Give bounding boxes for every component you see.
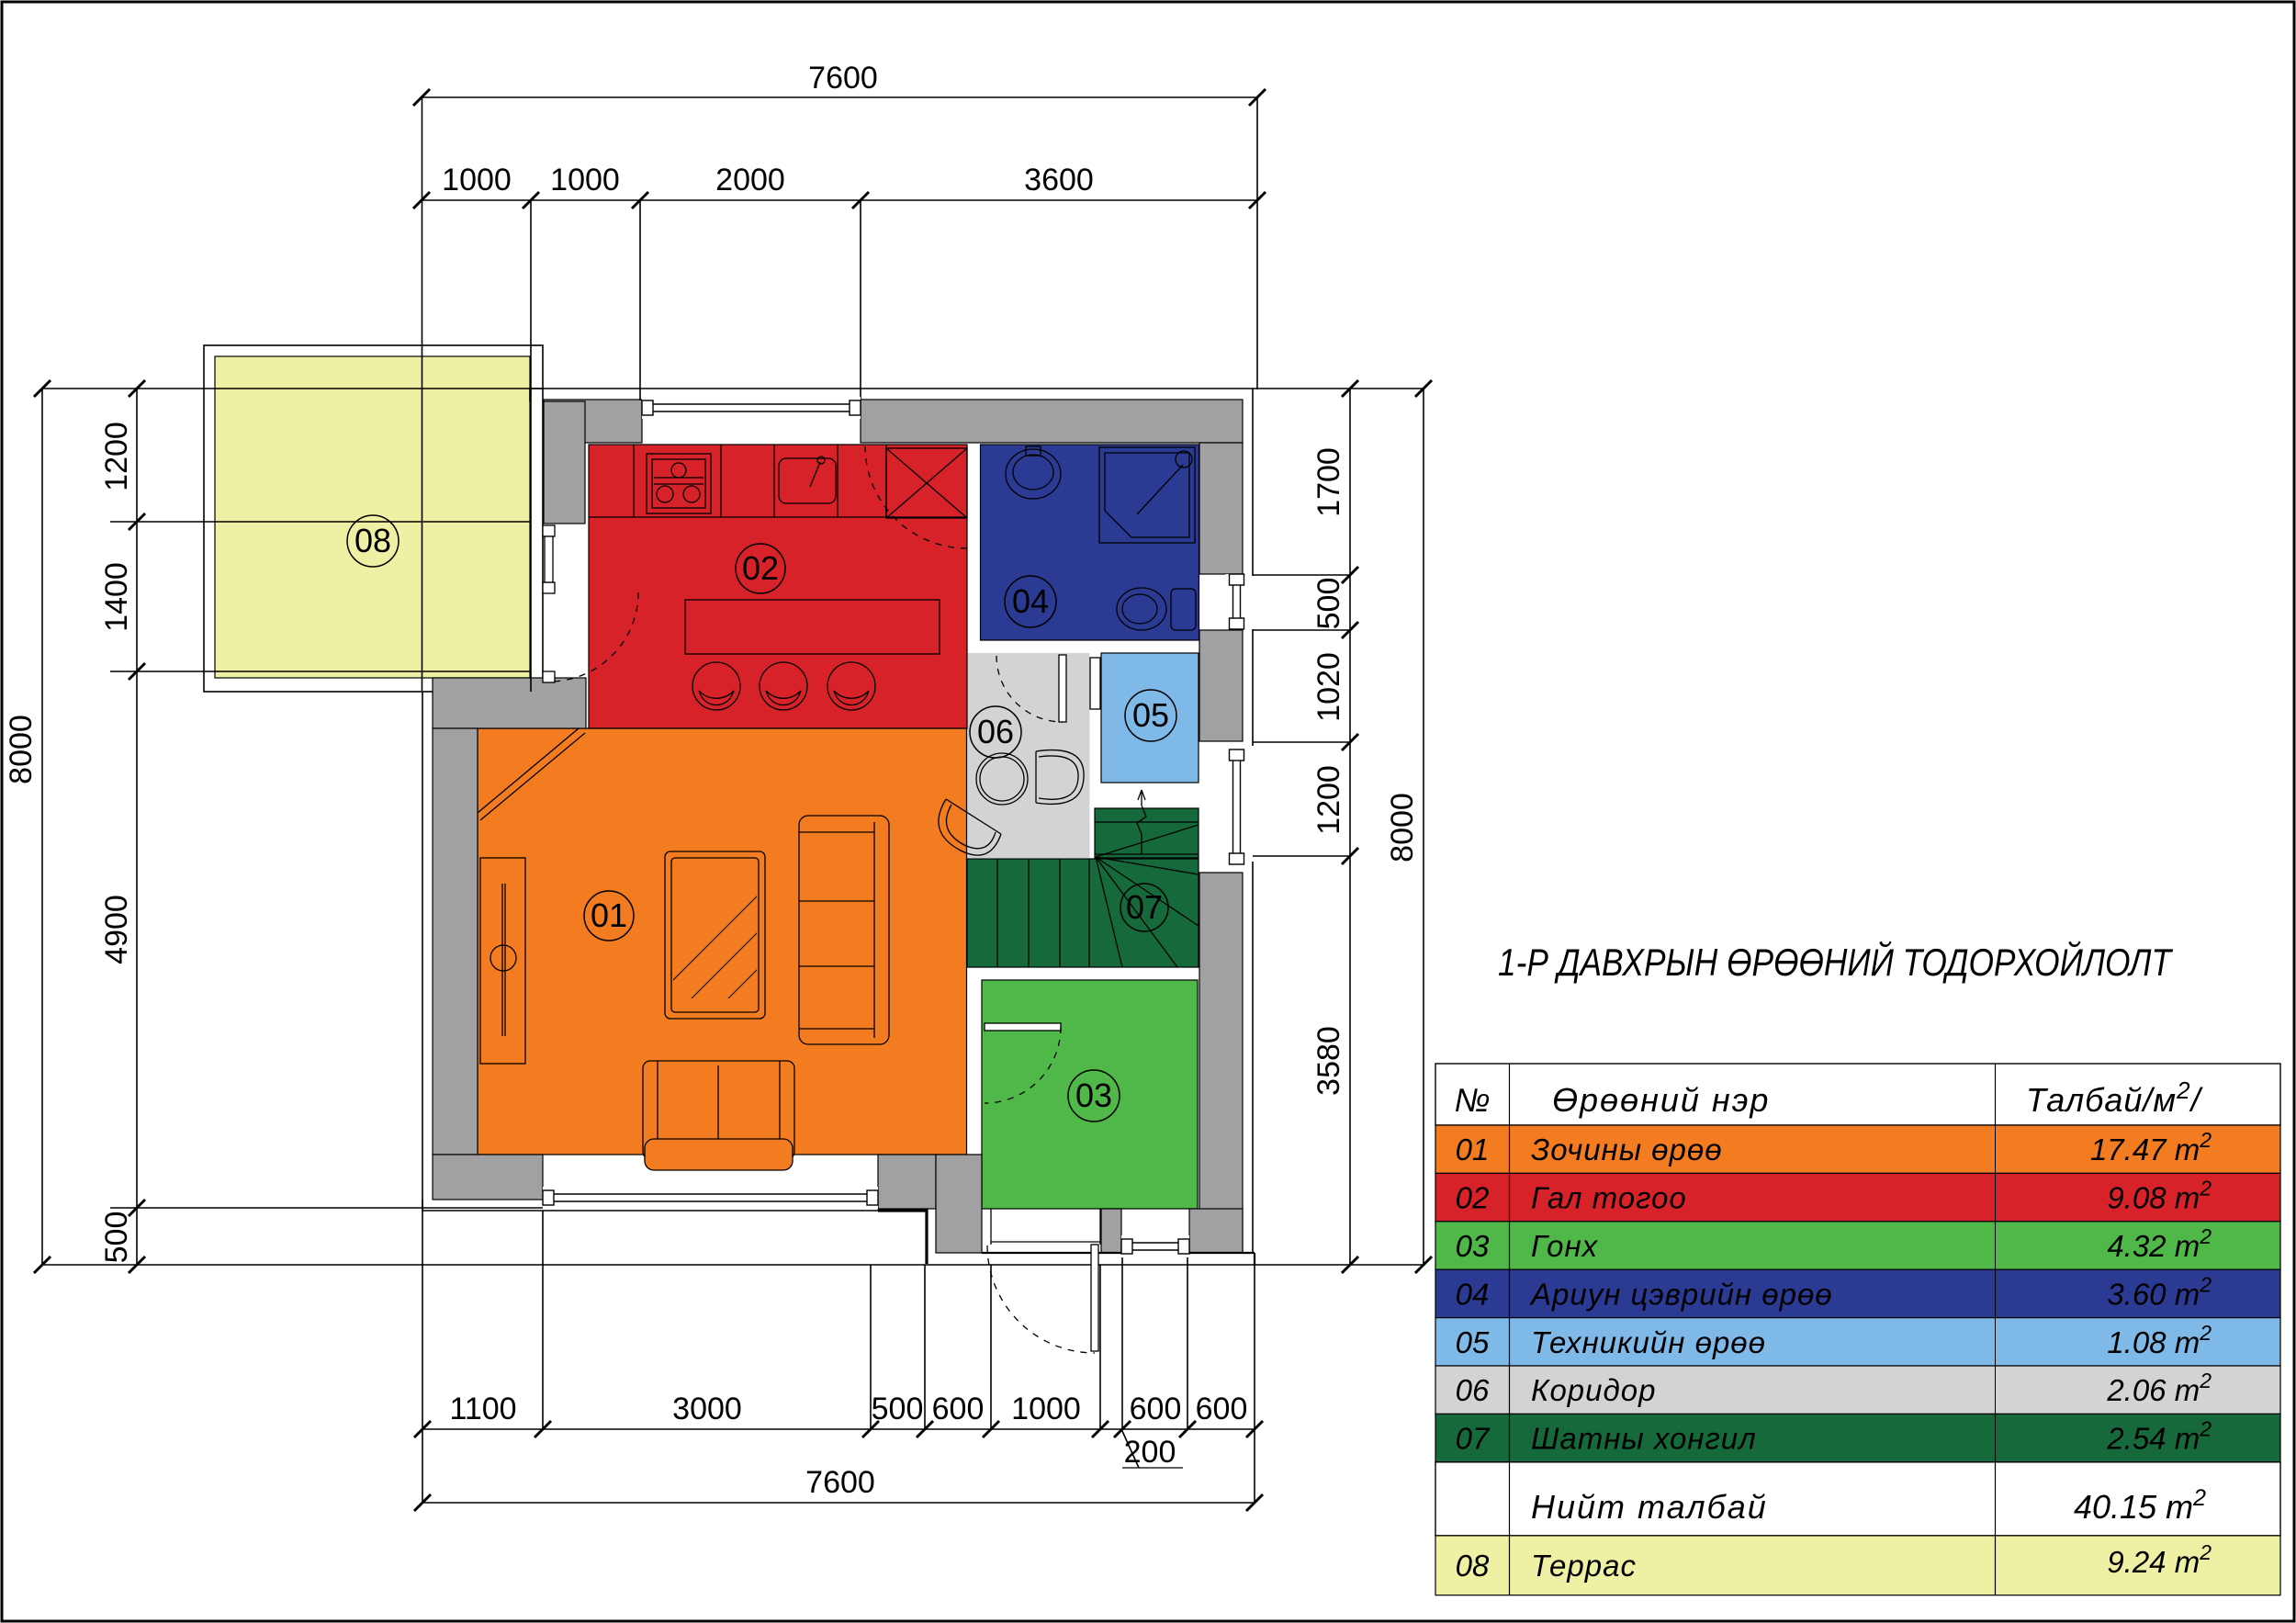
svg-text:2.54 m2: 2.54 m2 <box>2106 1417 2212 1456</box>
svg-text:2000: 2000 <box>715 163 785 197</box>
svg-text:500: 500 <box>99 1212 134 1264</box>
svg-text:№: № <box>1455 1081 1491 1119</box>
svg-text:07: 07 <box>1456 1422 1491 1456</box>
svg-text:8000: 8000 <box>1385 793 1420 862</box>
svg-text:3580: 3580 <box>1311 1026 1346 1096</box>
svg-text:08: 08 <box>1456 1549 1490 1583</box>
svg-text:Нийт талбай: Нийт талбай <box>1531 1488 1768 1526</box>
svg-text:1000: 1000 <box>442 163 512 197</box>
svg-text:40.15 m2: 40.15 m2 <box>2074 1485 2206 1526</box>
svg-text:1100: 1100 <box>449 1392 516 1426</box>
svg-text:Гонх: Гонх <box>1531 1229 1599 1263</box>
svg-text:05: 05 <box>1132 696 1169 734</box>
svg-text:Террас: Террас <box>1531 1549 1637 1583</box>
svg-text:Шатны хонгил: Шатны хонгил <box>1531 1422 1757 1456</box>
svg-text:500: 500 <box>872 1392 924 1426</box>
svg-text:8000: 8000 <box>4 715 39 784</box>
svg-text:06: 06 <box>977 713 1014 750</box>
svg-text:03: 03 <box>1456 1229 1490 1263</box>
svg-text:07: 07 <box>1126 888 1163 926</box>
svg-text:04: 04 <box>1456 1277 1490 1311</box>
svg-text:7600: 7600 <box>805 1465 875 1500</box>
svg-text:01: 01 <box>591 896 627 934</box>
svg-text:1020: 1020 <box>1311 652 1346 722</box>
svg-text:1700: 1700 <box>1311 447 1346 517</box>
svg-text:03: 03 <box>1075 1076 1112 1114</box>
svg-text:02: 02 <box>742 549 779 587</box>
svg-text:Техникийн өрөө: Техникийн өрөө <box>1531 1325 1766 1359</box>
svg-text:1000: 1000 <box>550 163 620 197</box>
svg-text:05: 05 <box>1456 1325 1490 1359</box>
svg-text:1.08 m2: 1.08 m2 <box>2107 1321 2212 1359</box>
svg-text:600: 600 <box>1130 1392 1182 1426</box>
svg-text:7600: 7600 <box>808 61 878 96</box>
svg-text:17.47 m2: 17.47 m2 <box>2090 1128 2212 1167</box>
svg-text:06: 06 <box>1456 1373 1490 1407</box>
svg-text:9.08 m2: 9.08 m2 <box>2107 1177 2212 1215</box>
svg-text:1-Р ДАВХРЫН ӨРӨӨНИЙ ТОДОРХОЙЛО: 1-Р ДАВХРЫН ӨРӨӨНИЙ ТОДОРХОЙЛОЛТ <box>1498 940 2174 984</box>
svg-text:01: 01 <box>1456 1133 1490 1167</box>
svg-text:600: 600 <box>932 1392 985 1426</box>
svg-text:1400: 1400 <box>99 562 134 632</box>
svg-text:Өрөөний нэр: Өрөөний нэр <box>1552 1081 1770 1119</box>
svg-text:4.32 m2: 4.32 m2 <box>2107 1224 2212 1263</box>
svg-text:02: 02 <box>1456 1181 1490 1215</box>
svg-text:04: 04 <box>1012 582 1049 620</box>
svg-text:2.06 m2: 2.06 m2 <box>2106 1369 2212 1407</box>
svg-text:Коридор: Коридор <box>1531 1373 1656 1407</box>
svg-text:1200: 1200 <box>1311 765 1346 835</box>
svg-text:Ариун цэврийн өрөө: Ариун цэврийн өрөө <box>1529 1277 1833 1311</box>
svg-text:Зочины өрөө: Зочины өрөө <box>1531 1133 1723 1167</box>
svg-text:500: 500 <box>1311 578 1346 630</box>
svg-text:600: 600 <box>1196 1392 1248 1426</box>
svg-text:9.24 m2: 9.24 m2 <box>2107 1540 2212 1579</box>
svg-text:1000: 1000 <box>1011 1392 1081 1426</box>
svg-text:3000: 3000 <box>672 1392 742 1426</box>
svg-text:3600: 3600 <box>1024 163 1094 197</box>
svg-text:Гал тогоо: Гал тогоо <box>1531 1181 1687 1215</box>
svg-text:3.60 m2: 3.60 m2 <box>2107 1272 2212 1311</box>
svg-text:4900: 4900 <box>99 895 134 964</box>
svg-text:1200: 1200 <box>99 422 134 491</box>
svg-text:08: 08 <box>355 522 391 559</box>
